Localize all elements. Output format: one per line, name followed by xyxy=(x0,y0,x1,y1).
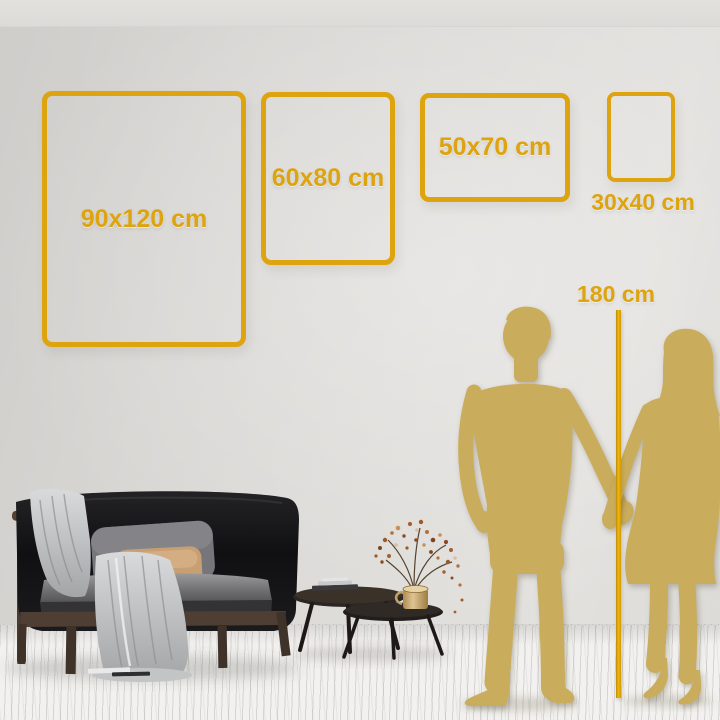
arm-blanket xyxy=(30,489,91,597)
height-marker-label: 180 cm xyxy=(565,281,667,308)
tan-pillow xyxy=(115,546,203,592)
frame-50x70-label: 50x70 cm xyxy=(439,133,552,162)
tan-pillow-highlight xyxy=(119,549,198,571)
frame-30x40-label: 30x40 cm xyxy=(581,189,705,216)
sofa-shell-highlight xyxy=(30,498,282,505)
ceiling-line xyxy=(0,0,720,27)
small-table-surface xyxy=(345,603,441,618)
large-table-top xyxy=(293,587,405,607)
wood-floor xyxy=(0,624,720,720)
seat-cushion xyxy=(40,573,272,609)
frame-30x40 xyxy=(607,92,675,182)
dried-plant-stems xyxy=(386,528,452,590)
frame-60x80: 60x80 cm xyxy=(261,92,395,265)
gray-pillow xyxy=(90,520,216,588)
seat-front xyxy=(40,600,272,618)
vase-handle xyxy=(396,592,403,604)
frame-90x120-label: 90x120 cm xyxy=(81,205,208,234)
frame-50x70: 50x70 cm xyxy=(420,93,570,202)
table-book xyxy=(322,578,348,582)
table-book xyxy=(312,584,358,591)
large-table-surface xyxy=(295,587,403,604)
arm-blanket-folds xyxy=(40,494,82,585)
frame-90x120: 90x120 cm xyxy=(42,91,246,347)
sofa-arm-rail xyxy=(12,511,90,524)
height-marker-line xyxy=(616,310,621,698)
small-table-top xyxy=(343,603,443,621)
frame-60x80-label: 60x80 cm xyxy=(272,164,385,193)
vase-rim xyxy=(403,586,428,593)
table-book xyxy=(318,580,352,585)
gray-pillow-highlight xyxy=(90,520,214,556)
dried-plant-blooms xyxy=(374,520,463,614)
size-guide-room-scene: 90x120 cm 60x80 cm 50x70 cm 30x40 cm 180… xyxy=(0,0,720,720)
sofa-shell xyxy=(16,491,299,631)
brass-vase xyxy=(403,589,428,609)
